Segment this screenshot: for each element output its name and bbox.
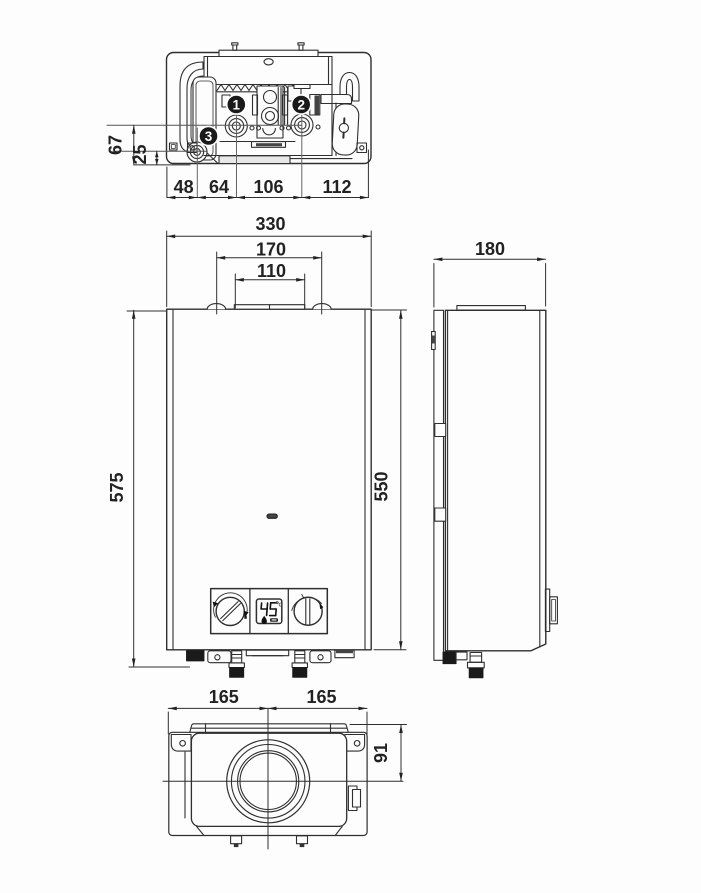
svg-text:1: 1 xyxy=(233,97,241,112)
svg-text:64: 64 xyxy=(209,177,229,197)
svg-text:575: 575 xyxy=(107,472,127,502)
svg-text:110: 110 xyxy=(257,261,286,281)
svg-text:48: 48 xyxy=(174,177,194,197)
svg-text:165: 165 xyxy=(306,687,336,707)
svg-text:165: 165 xyxy=(209,687,239,707)
svg-text:67: 67 xyxy=(106,135,126,155)
svg-text:106: 106 xyxy=(253,177,283,197)
svg-text:170: 170 xyxy=(256,240,286,260)
svg-text:3: 3 xyxy=(205,129,213,144)
svg-text:112: 112 xyxy=(322,177,351,197)
svg-text:180: 180 xyxy=(475,239,505,259)
svg-text:91: 91 xyxy=(371,743,391,763)
svg-text:550: 550 xyxy=(372,471,392,501)
svg-text:2: 2 xyxy=(297,97,305,112)
svg-text:330: 330 xyxy=(255,214,285,234)
svg-text:25: 25 xyxy=(130,144,150,164)
